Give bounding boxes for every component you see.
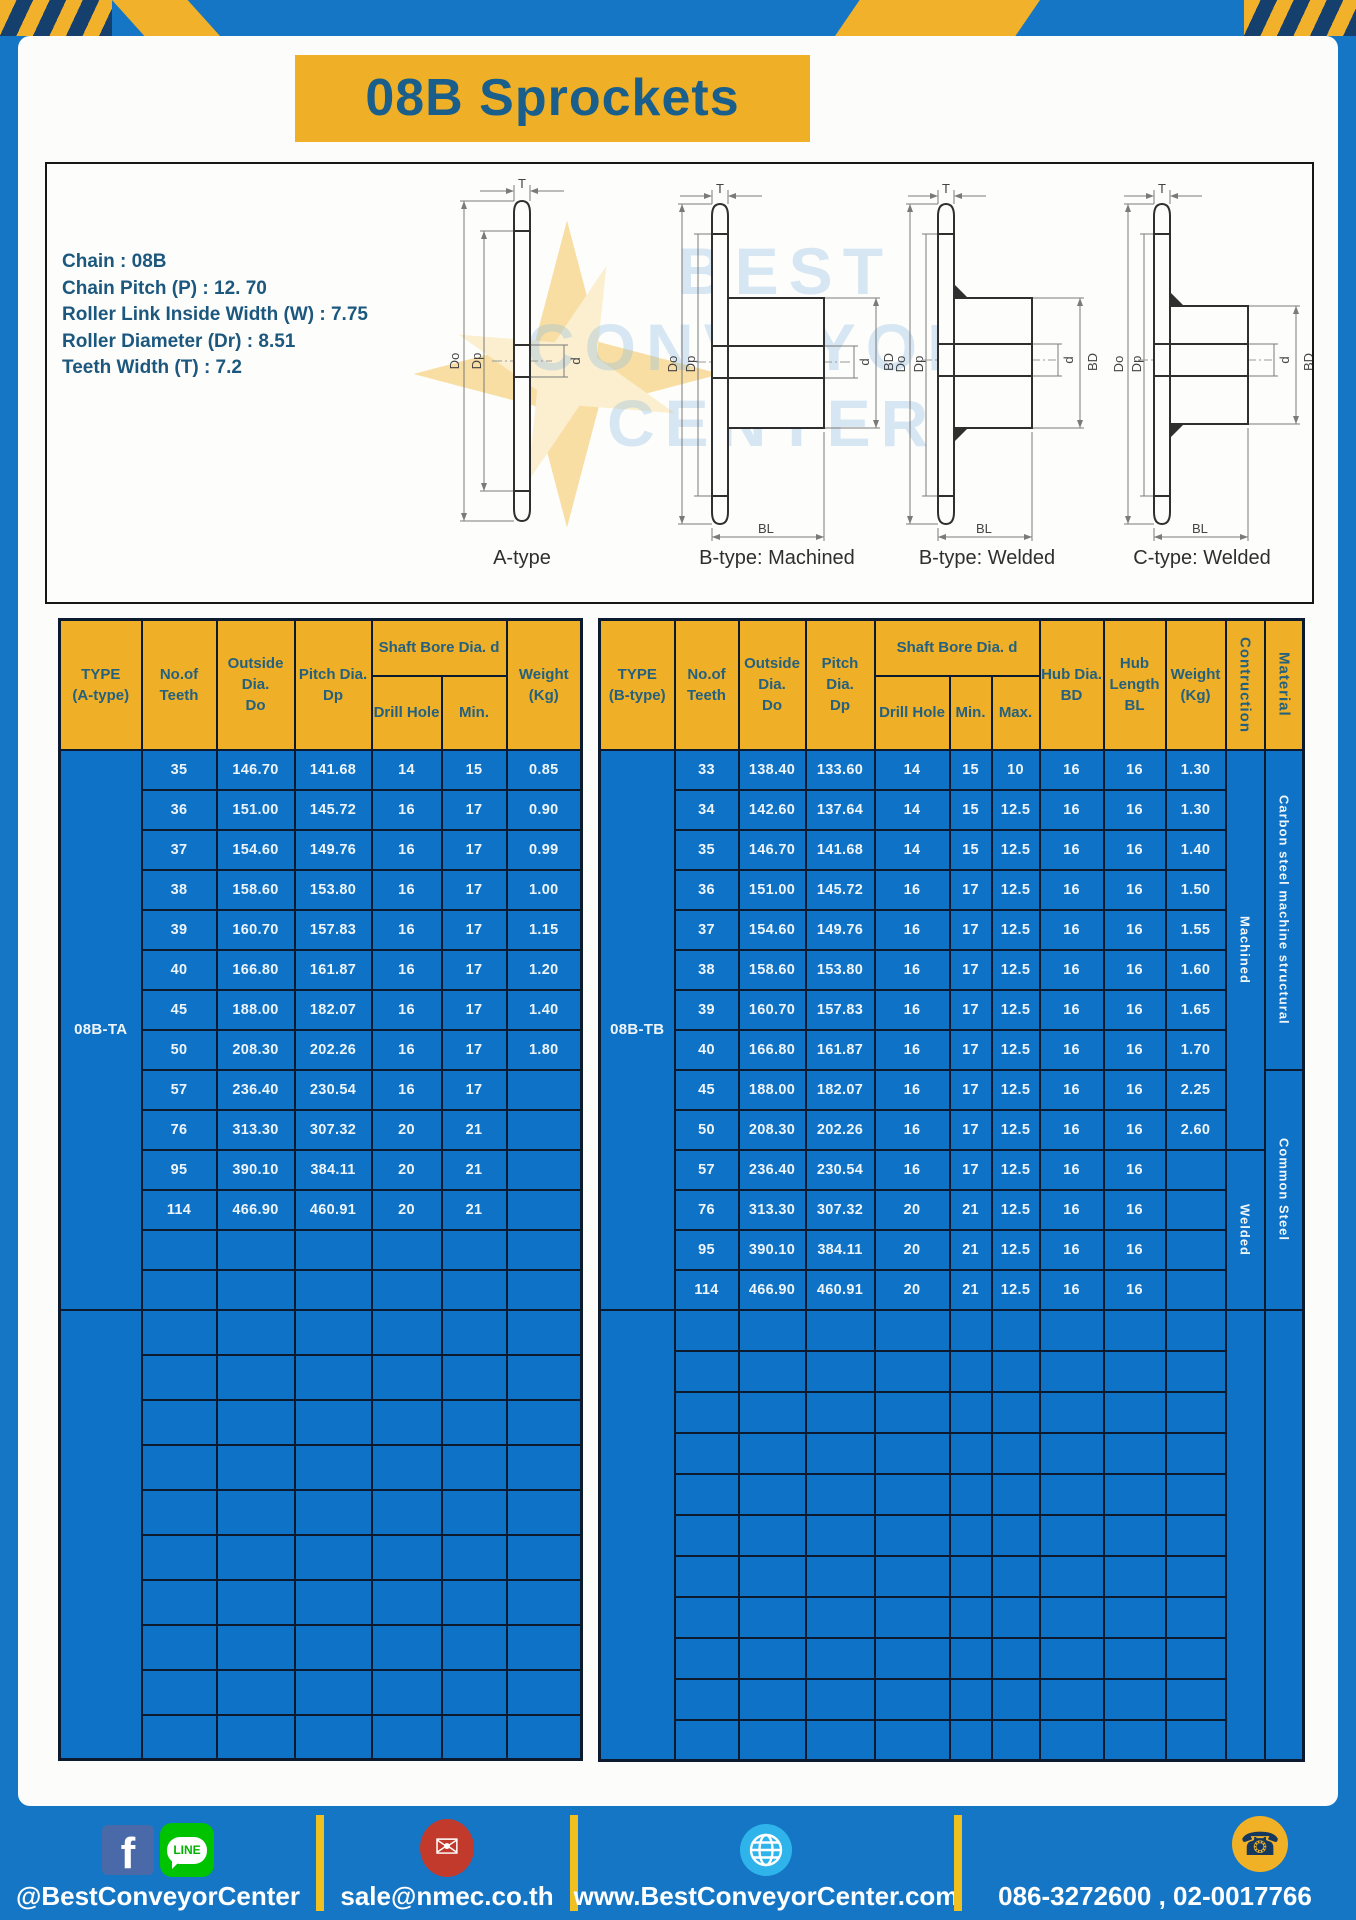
table-cell: 146.70 [739, 830, 806, 870]
table-cell: 17 [950, 1030, 992, 1070]
table-cell: 146.70 [217, 750, 295, 790]
table-cell: 154.60 [217, 830, 295, 870]
table-cell: 16 [1040, 870, 1104, 910]
table-cell [507, 1355, 582, 1400]
table-cell: 21 [442, 1190, 507, 1230]
table-cell: 16 [1104, 1270, 1166, 1310]
table-cell [1104, 1597, 1166, 1638]
table-cell [295, 1445, 372, 1490]
table-cell [507, 1270, 582, 1310]
table-cell [295, 1580, 372, 1625]
table-cell [1166, 1556, 1226, 1597]
table-cell [1166, 1433, 1226, 1474]
table-cell: 182.07 [806, 1070, 875, 1110]
table-cell [1166, 1720, 1226, 1761]
b-type-table: TYPE(B-type)No.ofTeethOutsideDia.DoPitch… [598, 618, 1305, 1762]
table-cell [675, 1679, 739, 1720]
b-type-machined-diagram: T Do Dp d BD BL [652, 184, 902, 544]
table-cell [442, 1270, 507, 1310]
svg-text:d: d [568, 357, 583, 364]
table-cell [507, 1150, 582, 1190]
table-cell [372, 1670, 442, 1715]
table-cell [442, 1310, 507, 1355]
table-cell: 12.5 [992, 1110, 1040, 1150]
table-row [600, 1433, 1304, 1474]
table-cell: 1.65 [1166, 990, 1226, 1030]
table-cell: 1.00 [507, 870, 582, 910]
table-cell [806, 1597, 875, 1638]
table-cell [806, 1433, 875, 1474]
table-cell: 182.07 [295, 990, 372, 1030]
table-cell: 307.32 [295, 1110, 372, 1150]
table-cell [875, 1679, 950, 1720]
table-cell [142, 1535, 217, 1580]
table-cell: 16 [1104, 1150, 1166, 1190]
table-cell: 15 [442, 750, 507, 790]
table-cell [1166, 1351, 1226, 1392]
table-cell [806, 1679, 875, 1720]
table-cell [507, 1580, 582, 1625]
table-cell [142, 1230, 217, 1270]
footer-divider [954, 1815, 962, 1911]
table-cell: 166.80 [739, 1030, 806, 1070]
table-cell [992, 1392, 1040, 1433]
table-cell: 16 [1104, 1190, 1166, 1230]
table-cell [372, 1400, 442, 1445]
table-cell: 16 [1040, 750, 1104, 790]
table-cell: 12.5 [992, 790, 1040, 830]
table-cell: 160.70 [217, 910, 295, 950]
table-row [600, 1679, 1304, 1720]
table-cell: 138.40 [739, 750, 806, 790]
construction-header: Contruction [1226, 620, 1265, 750]
table-cell: 16 [1040, 1230, 1104, 1270]
table-row: 08B-TA35146.70141.6814150.85 [60, 750, 582, 790]
table-cell [1040, 1310, 1104, 1351]
table-cell: 17 [442, 910, 507, 950]
table-cell [1104, 1720, 1166, 1761]
svg-text:BD: BD [1301, 353, 1312, 371]
construction-cell: Welded [1226, 1150, 1265, 1310]
table-cell [950, 1351, 992, 1392]
table-row [60, 1310, 582, 1355]
svg-text:d: d [1061, 356, 1076, 363]
table-cell [992, 1556, 1040, 1597]
table-cell: 16 [875, 1110, 950, 1150]
table-cell [142, 1400, 217, 1445]
table-row: 50208.30202.26161712.516162.60 [600, 1110, 1304, 1150]
table-cell [142, 1310, 217, 1355]
table-cell: 0.99 [507, 830, 582, 870]
table-cell [295, 1355, 372, 1400]
table-cell [507, 1400, 582, 1445]
table-cell [1166, 1230, 1226, 1270]
svg-text:d: d [1277, 356, 1292, 363]
type-cell [60, 1310, 142, 1760]
table-cell [806, 1720, 875, 1761]
table-cell: 21 [950, 1270, 992, 1310]
table-cell: 15 [950, 830, 992, 870]
table-cell: 16 [372, 1030, 442, 1070]
table-cell [1104, 1351, 1166, 1392]
table-cell [372, 1310, 442, 1355]
table-cell: 95 [142, 1150, 217, 1190]
svg-text:d: d [857, 358, 872, 365]
table-cell [675, 1597, 739, 1638]
table-cell [739, 1638, 806, 1679]
table-cell: 460.91 [295, 1190, 372, 1230]
table-cell [806, 1351, 875, 1392]
table-cell [1040, 1392, 1104, 1433]
table-cell: 16 [372, 990, 442, 1030]
table-cell: 188.00 [217, 990, 295, 1030]
table-cell: 16 [875, 1070, 950, 1110]
table-cell: 17 [950, 1150, 992, 1190]
table-cell: 313.30 [217, 1110, 295, 1150]
table-cell: 17 [950, 990, 992, 1030]
table-cell [507, 1230, 582, 1270]
table-cell: 12.5 [992, 830, 1040, 870]
table-cell [442, 1580, 507, 1625]
table-cell: 12.5 [992, 950, 1040, 990]
table-cell: 76 [675, 1190, 739, 1230]
hazard-stripes-right [1244, 0, 1356, 36]
table-cell: 14 [875, 750, 950, 790]
table-cell [442, 1355, 507, 1400]
table-cell: 17 [950, 910, 992, 950]
header-cell: Pitch Dia.Dp [295, 620, 372, 750]
table-cell [372, 1445, 442, 1490]
table-cell: 34 [675, 790, 739, 830]
table-cell: 154.60 [739, 910, 806, 950]
email-icon[interactable]: ✉ [420, 1819, 474, 1877]
header-cell: HubLengthBL [1104, 620, 1166, 750]
table-cell [142, 1445, 217, 1490]
table-cell: 1.40 [507, 990, 582, 1030]
table-cell [372, 1490, 442, 1535]
table-cell [1040, 1597, 1104, 1638]
table-cell [372, 1580, 442, 1625]
table-row: 38158.60153.80161712.516161.60 [600, 950, 1304, 990]
table-cell: 21 [950, 1190, 992, 1230]
svg-text:BL: BL [1192, 521, 1208, 536]
table-row [600, 1638, 1304, 1679]
table-cell [675, 1392, 739, 1433]
table-cell: 1.60 [1166, 950, 1226, 990]
table-cell [992, 1351, 1040, 1392]
table-cell: 38 [142, 870, 217, 910]
footer-email-label[interactable]: sale@nmec.co.th [340, 1881, 553, 1912]
table-row: 45188.00182.07161712.516162.25Common Ste… [600, 1070, 1304, 1110]
diagram-caption: C-type: Welded [1102, 547, 1302, 570]
table-cell [950, 1597, 992, 1638]
table-cell: 15 [950, 750, 992, 790]
table-cell: 17 [950, 870, 992, 910]
table-cell [507, 1110, 582, 1150]
table-cell [442, 1670, 507, 1715]
table-cell: 16 [1104, 1070, 1166, 1110]
table-cell [295, 1535, 372, 1580]
table-row: 36151.00145.72161712.516161.50 [600, 870, 1304, 910]
table-cell [950, 1679, 992, 1720]
header-cell: Hub Dia.BD [1040, 620, 1104, 750]
header-cell: Min. [950, 676, 992, 750]
table-cell: 2.25 [1166, 1070, 1226, 1110]
line-icon[interactable]: LINE [160, 1823, 214, 1877]
table-row [600, 1474, 1304, 1515]
table-cell: 16 [1040, 790, 1104, 830]
table-row [600, 1515, 1304, 1556]
spec-line: Chain : 08B [62, 249, 492, 276]
table-cell: 16 [875, 870, 950, 910]
table-cell: 0.85 [507, 750, 582, 790]
header-cell: OutsideDia.Do [739, 620, 806, 750]
table-cell: 16 [1104, 910, 1166, 950]
table-row [600, 1351, 1304, 1392]
table-cell [806, 1474, 875, 1515]
table-cell: 16 [1040, 1190, 1104, 1230]
table-cell [142, 1490, 217, 1535]
table-cell: 12.5 [992, 870, 1040, 910]
table-cell [1104, 1638, 1166, 1679]
b-type-welded-diagram: T Do Dp d BD BL [882, 184, 1102, 544]
table-cell [806, 1515, 875, 1556]
table-cell: 1.55 [1166, 910, 1226, 950]
table-cell [675, 1556, 739, 1597]
header-cell: Min. [442, 676, 507, 750]
footer-phone-label[interactable]: 086-3272600 , 02-0017766 [998, 1881, 1312, 1912]
spec-line: Roller Link Inside Width (W) : 7.75 [62, 302, 492, 329]
table-row: 35146.70141.68141512.516161.40 [600, 830, 1304, 870]
table-cell: 384.11 [806, 1230, 875, 1270]
table-cell [217, 1270, 295, 1310]
table-cell: 33 [675, 750, 739, 790]
table-cell [217, 1625, 295, 1670]
table-cell [875, 1351, 950, 1392]
table-cell: 21 [442, 1110, 507, 1150]
table-cell [142, 1715, 217, 1760]
table-cell: 188.00 [739, 1070, 806, 1110]
table-cell: 20 [875, 1270, 950, 1310]
table-cell [295, 1625, 372, 1670]
table-cell: 37 [142, 830, 217, 870]
material-header: Material [1265, 620, 1304, 750]
table-cell: 1.30 [1166, 750, 1226, 790]
table-cell [217, 1670, 295, 1715]
table-cell: 12.5 [992, 990, 1040, 1030]
table-cell: 14 [875, 830, 950, 870]
c-type-welded-diagram: T Do Dp d BD BL [1102, 184, 1312, 544]
table-cell: 16 [372, 950, 442, 990]
table-cell: 149.76 [295, 830, 372, 870]
table-cell: 16 [1104, 1230, 1166, 1270]
table-cell [875, 1474, 950, 1515]
table-cell: 14 [372, 750, 442, 790]
table-cell [875, 1392, 950, 1433]
table-cell [1104, 1474, 1166, 1515]
table-cell [1040, 1679, 1104, 1720]
table-cell: 1.15 [507, 910, 582, 950]
table-cell [142, 1355, 217, 1400]
svg-text:T: T [1158, 184, 1166, 196]
header-cell: TYPE(B-type) [600, 620, 675, 750]
table-cell: 40 [142, 950, 217, 990]
table-cell: 2.60 [1166, 1110, 1226, 1150]
footer-website-section: www.BestConveyorCenter.com [578, 1806, 954, 1920]
table-cell [442, 1230, 507, 1270]
svg-text:Do: Do [893, 356, 908, 373]
table-cell [442, 1490, 507, 1535]
table-cell: 16 [372, 830, 442, 870]
table-cell: 50 [142, 1030, 217, 1070]
table-cell: 95 [675, 1230, 739, 1270]
table-cell: 20 [372, 1190, 442, 1230]
table-cell [950, 1515, 992, 1556]
table-cell [992, 1638, 1040, 1679]
table-cell [806, 1392, 875, 1433]
table-cell: 145.72 [295, 790, 372, 830]
table-cell [950, 1310, 992, 1351]
diagram-box: BEST CONVEYOR CENTER Chain : 08B Chain P… [45, 162, 1314, 604]
table-row: 34142.60137.64141512.516161.30 [600, 790, 1304, 830]
header-cell: Drill Hole [372, 676, 442, 750]
table-cell [217, 1445, 295, 1490]
table-cell [295, 1715, 372, 1760]
table-cell [675, 1515, 739, 1556]
table-cell: 39 [675, 990, 739, 1030]
table-cell [739, 1474, 806, 1515]
svg-text:Dp: Dp [911, 356, 926, 373]
table-cell [1166, 1679, 1226, 1720]
table-cell [675, 1638, 739, 1679]
table-cell [372, 1270, 442, 1310]
header-cell: Drill Hole [875, 676, 950, 750]
footer-website-label[interactable]: www.BestConveyorCenter.com [574, 1881, 959, 1912]
yellow-band-left [112, 0, 220, 36]
table-cell: 17 [950, 950, 992, 990]
table-cell [295, 1490, 372, 1535]
table-cell [372, 1625, 442, 1670]
header-cell: Shaft Bore Dia. d [875, 620, 1040, 676]
table-cell [739, 1679, 806, 1720]
table-cell: 16 [875, 990, 950, 1030]
table-cell: 230.54 [806, 1150, 875, 1190]
table-cell: 21 [442, 1150, 507, 1190]
hazard-stripes-left [0, 0, 112, 36]
table-cell: 16 [372, 910, 442, 950]
table-cell [675, 1433, 739, 1474]
table-cell: 161.87 [806, 1030, 875, 1070]
facebook-icon[interactable]: f [102, 1825, 154, 1875]
table-cell: 12.5 [992, 1270, 1040, 1310]
table-row: 40166.80161.87161712.516161.70 [600, 1030, 1304, 1070]
table-cell [507, 1670, 582, 1715]
table-cell [1040, 1638, 1104, 1679]
table-cell [372, 1355, 442, 1400]
diagram-caption: B-type: Welded [887, 547, 1087, 570]
table-cell [507, 1625, 582, 1670]
table-cell: 16 [875, 1030, 950, 1070]
spec-line: Roller Diameter (Dr) : 8.51 [62, 329, 492, 356]
table-cell: 307.32 [806, 1190, 875, 1230]
table-cell: 16 [1104, 1030, 1166, 1070]
table-cell [1104, 1679, 1166, 1720]
table-cell: 149.76 [806, 910, 875, 950]
table-cell: 12.5 [992, 1190, 1040, 1230]
table-cell [806, 1556, 875, 1597]
table-cell [1040, 1474, 1104, 1515]
table-cell [992, 1433, 1040, 1474]
table-cell: 160.70 [739, 990, 806, 1030]
table-cell [739, 1310, 806, 1351]
material-cell: Carbon steel machine structural [1265, 750, 1304, 1070]
table-cell: 36 [675, 870, 739, 910]
table-cell [1104, 1310, 1166, 1351]
table-cell: 161.87 [295, 950, 372, 990]
table-row: 39160.70157.83161712.516161.65 [600, 990, 1304, 1030]
footer-social-label[interactable]: @BestConveyorCenter [16, 1881, 300, 1912]
table-cell: 1.20 [507, 950, 582, 990]
table-cell: 16 [1040, 1150, 1104, 1190]
table-cell [1040, 1556, 1104, 1597]
table-cell: 236.40 [217, 1070, 295, 1110]
table-cell: 16 [1040, 910, 1104, 950]
table-cell: 1.30 [1166, 790, 1226, 830]
footer-phone-section: ☎ 086-3272600 , 02-0017766 [962, 1806, 1348, 1920]
sheet: 08B Sprockets BEST CONVEYOR CENTER Chain… [18, 36, 1338, 1806]
table-cell: 40 [675, 1030, 739, 1070]
table-cell: 151.00 [739, 870, 806, 910]
svg-text:BD: BD [1085, 353, 1100, 371]
table-row: 76313.30307.32202112.51616 [600, 1190, 1304, 1230]
table-row: 57236.40230.54161712.51616Welded [600, 1150, 1304, 1190]
table-cell: 17 [950, 1110, 992, 1150]
table-cell: 202.26 [806, 1110, 875, 1150]
material-cell [1265, 1310, 1304, 1761]
table-cell [217, 1715, 295, 1760]
footer: f LINE @BestConveyorCenter ✉ sale@nmec.c… [0, 1806, 1356, 1920]
table-cell: 384.11 [295, 1150, 372, 1190]
table-cell: 137.64 [806, 790, 875, 830]
svg-text:BL: BL [758, 521, 774, 536]
table-cell: 313.30 [739, 1190, 806, 1230]
table-cell [1040, 1433, 1104, 1474]
table-cell [372, 1715, 442, 1760]
svg-text:Dp: Dp [1129, 356, 1144, 373]
table-cell [739, 1392, 806, 1433]
table-cell: 141.68 [806, 830, 875, 870]
table-cell [1104, 1515, 1166, 1556]
table-cell [295, 1400, 372, 1445]
table-cell: 114 [675, 1270, 739, 1310]
header-cell: Weight(Kg) [1166, 620, 1226, 750]
globe-icon[interactable] [739, 1823, 793, 1877]
table-cell: 142.60 [739, 790, 806, 830]
header-cell: No.ofTeeth [675, 620, 739, 750]
header-cell: Shaft Bore Dia. d [372, 620, 507, 676]
table-cell [992, 1679, 1040, 1720]
page: 08B Sprockets BEST CONVEYOR CENTER Chain… [0, 0, 1356, 1920]
footer-divider [316, 1815, 324, 1911]
table-cell: 45 [142, 990, 217, 1030]
svg-text:BL: BL [976, 521, 992, 536]
table-cell [675, 1310, 739, 1351]
table-cell: 16 [875, 950, 950, 990]
table-cell: 17 [442, 1030, 507, 1070]
construction-cell [1226, 1310, 1265, 1761]
table-cell [295, 1310, 372, 1355]
phone-icon[interactable]: ☎ [1232, 1816, 1288, 1872]
